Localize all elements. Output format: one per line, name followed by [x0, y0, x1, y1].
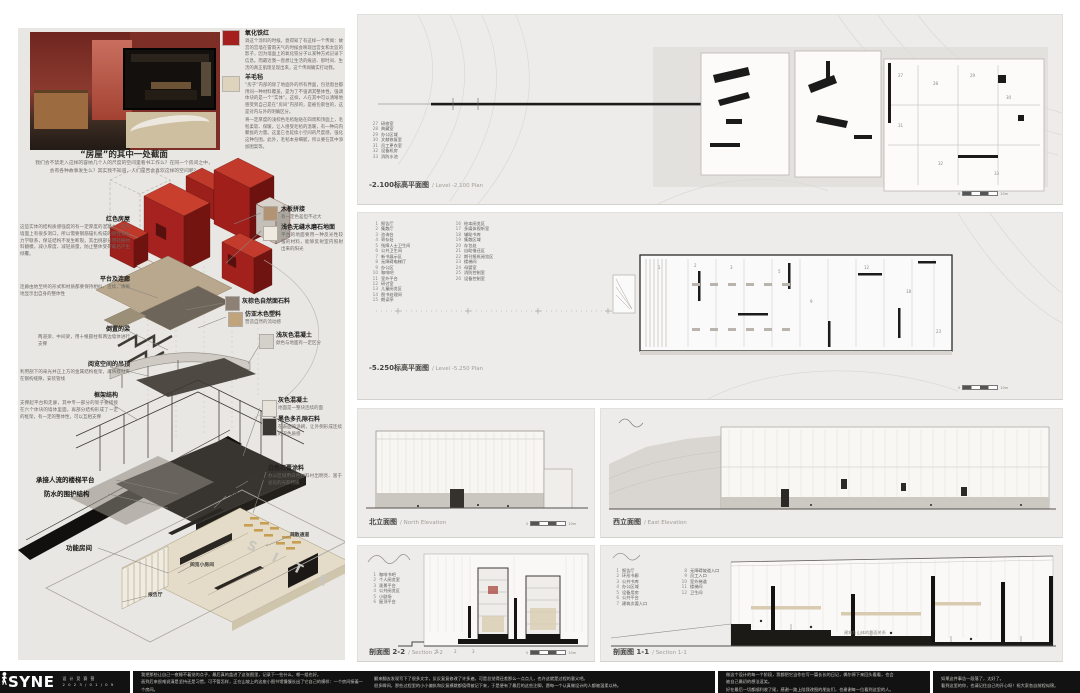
annotation-light-concrete: 浅灰色混凝土 颜色与地面有一定区分 [276, 332, 342, 348]
svg-text:28: 28 [933, 81, 939, 86]
annotation-body: 办公区域用白色材料衬出明亮、富于变化的光影特质 [268, 474, 342, 488]
section22-caption: 剖面图 2-2/ Section 2-2 [369, 647, 443, 657]
annotation-title: 浅灰色混凝土 [276, 332, 342, 339]
axonometric-panel: S I T E [18, 28, 345, 660]
concept-sketch [613, 553, 640, 560]
scale-bar: 010m [526, 521, 576, 526]
annotation-stair-platform: 承接人流的楼梯平台 [36, 474, 95, 484]
annotation-title: 灰棕色自然面石料 [242, 298, 342, 305]
annotation-body: 连廊由始至终的形式和材质都要保持相似、连续，清晰地显示出自身的整体性 [20, 285, 130, 299]
annotation-title: 仿亚木色塑料 [245, 311, 341, 318]
annotation-body: 平台的地面要用一种反光性较强的材料，能够反射室内照射出来的阳光 [281, 233, 343, 253]
swatch-terrazzo [263, 226, 278, 241]
caption-en: / Level -5.250 Plan [432, 366, 483, 372]
plan-level-2100-panel: 272829 303132 33 27研修室28典藏室29办公区域30文献修复室… [357, 14, 1063, 205]
plan2-legend: 1报告厅2集散厅3咨询台4寄存处5残障人士卫生间6公共卫生间7新书展示区8无障碍… [370, 221, 520, 305]
scale-zero: 0 [958, 386, 960, 390]
plan1-legend: 27研修室28典藏室29办公区域30文献修复室31员工更衣室32设备机房33消防… [370, 121, 402, 159]
figure-icon [0, 671, 9, 687]
legend-item: 12卫生间 [679, 590, 731, 595]
annotation-body: 营造自然的流动感 [245, 320, 341, 327]
svg-text:30: 30 [1006, 95, 1012, 100]
note-title: 羊毛毡 [245, 74, 343, 81]
svg-text:27: 27 [898, 73, 904, 78]
plan-level-5250-panel: 123 5912 1823 1报告厅2集散厅3咨询台4寄存处5残障人士卫生间6公… [357, 212, 1063, 400]
plan2-caption: -5.250标高平面图/ Level -5.250 Plan [369, 363, 483, 373]
scale-zero: 0 [526, 522, 528, 526]
annotation-red-houses: 红色房屋 这些实体的结构质感强度的有一定厚度的混凝土，因为墙面上有很多洞口，所以… [20, 216, 130, 259]
section-2-2-panel: 123 1咖啡书吧2个人阅览室3观景平台4公共阅览区5小剧场6屋顶平台 剖面图 … [357, 545, 595, 662]
scale-end: 10m [568, 522, 576, 526]
svg-text:31: 31 [898, 123, 904, 128]
note-title: 氧化铁红 [245, 30, 343, 37]
section-title: “房屋”的其中一处截面 [28, 148, 220, 160]
caption-zh: 西立面图 [613, 518, 641, 526]
legend-item: 15朗读亭 [370, 297, 437, 302]
annotation-gray-concrete: 灰色混凝土 地面是一整块连续的面 [278, 397, 342, 413]
chairs-row [145, 90, 197, 100]
caption-zh: 剖面图 1-1 [613, 648, 649, 656]
interior-render-photo [30, 32, 220, 150]
north-elevation-panel: 北立面图/ North Elevation 010m [357, 408, 595, 538]
legend-item: 7建筑次要入口 [611, 601, 663, 606]
swatch-stone [225, 296, 240, 311]
swatch-wood-plank [263, 206, 278, 221]
swatch-light-concrete [259, 334, 274, 349]
annotation-body: 这些实体的结构质感强度的有一定厚度的混凝土，因为墙面上有很多洞口，所以需要钢筋锚… [20, 225, 130, 259]
material-swatch-red [222, 30, 240, 46]
annotation-body: 地面是一整块连续的面 [278, 406, 342, 413]
caption-en: / Section 2-2 [408, 650, 443, 656]
presentation-board: S I T E [0, 0, 1080, 693]
caption-zh: -5.250标高平面图 [369, 364, 429, 372]
footer-line: 我把那些让自己一夜睡不着觉的点子，最后真的盖进了这张图里，记录下一些什么，哪一组… [141, 671, 366, 678]
caption-en: / Section 1-1 [652, 650, 687, 656]
meeting-table [151, 82, 191, 89]
annotation-ceiling: 阅览空间的吊顶 利用剖下的采光井正上方的金属结构框架，再将膜材夹在钢构缝隙，安装… [20, 361, 130, 384]
label-reading-room: 阅览小房间 [190, 561, 214, 568]
swatch-gray-concrete [262, 400, 277, 417]
window-slot [201, 62, 211, 96]
swatch-plastic [228, 312, 243, 327]
footer-line: 画到后来很难说清是坚持还是习惯，可不管怎样，正在山坡上的这座小图书馆慢慢长出了它… [141, 678, 366, 692]
footer-text-block-1: 我把那些让自己一夜睡不着觉的点子，最后真的盖进了这张图里，记录下一些什么，哪一组… [133, 671, 715, 693]
note-body: 调这个涂料的时候，竟得知了有这样一个传闻：故宫的宫墙在雷雨天气的时候会映现出宫女… [245, 39, 343, 72]
annotation-waterproof-envelope: 防水的围护结构 [44, 488, 90, 498]
annotation-inverted-beam: 倒置的梁 两道梁、中间梁，用十根圆柱和两边墙体进行支撑 [38, 326, 130, 349]
note-body: “房子”内部的除了地面外的所有界面，包括窗台都用同一种材料覆盖，是为了不强调其整… [245, 83, 343, 116]
plan-level-2100-drawing: 272829 303132 33 [358, 15, 1062, 204]
footer-sub-title: 设 计 竞 赛 营 [62, 676, 95, 681]
caption-zh: 剖面图 2-2 [369, 648, 405, 656]
syne-logo: SYNE [8, 673, 54, 691]
footer-note: 如果这件事告一段落了，太好了。 看到这里的你，也请记住自己的开心呀！祝大家各自前… [941, 675, 1072, 689]
svg-text:2: 2 [454, 649, 457, 654]
caption-en: / Level -2.100 Plan [432, 183, 483, 189]
label-evacuation: 疏散通道 [290, 531, 309, 538]
annotation-title: 白色石膏涂料 [268, 465, 342, 472]
annotation-title: 灰色混凝土 [278, 397, 342, 404]
note-body-2: 将一定厚度的浅棕色毛毡粘贴在四周和顶面上，毛毡柔软、保暖，让人感受毛毡的温暖，有… [245, 118, 343, 151]
scale-end: 10m [1000, 386, 1008, 390]
caption-zh: -2.100标高平面图 [369, 181, 429, 189]
legend-item: 33消防水池 [370, 154, 402, 159]
caption-zh: 北立面图 [369, 518, 397, 526]
footer-line: 好在最后一切都顺利收了尾，感谢一路上陪我改图的朋友们，也谢谢每一位看到这里的人。 [726, 686, 896, 693]
svg-text:32: 32 [938, 161, 944, 166]
scale-zero: 0 [526, 651, 528, 655]
east-elevation-panel: 西立面图/ East Elevation [600, 408, 1063, 538]
section11-legend: 1报告厅2环形书廊3公共书库4办公区域5设备用房6公共平台7建筑次要入口8无障碍… [611, 568, 731, 610]
svg-text:23: 23 [936, 329, 942, 334]
note-wool-felt: 羊毛毡 “房子”内部的除了地面外的所有界面，包括窗台都用同一种材料覆盖，是为了不… [245, 74, 343, 151]
scale-zero: 0 [958, 192, 960, 196]
material-swatch-felt [222, 76, 240, 92]
annotation-title: 倒置的梁 [38, 326, 130, 333]
footer-note: 我把那些让自己一夜睡不着觉的点子，最后真的盖进了这张图里，记录下一些什么，哪一组… [141, 671, 366, 692]
footer-text-block-3: 如果这件事告一段落了，太好了。 看到这里的你，也请记住自己的开心呀！祝大家各自前… [933, 671, 1080, 693]
meeting-room-inset [123, 48, 216, 110]
section-body: 我们会不禁走入这样的容纳几个人的尺度的空间里看书工作么？在同一个房间之中， 会有… [20, 160, 228, 175]
footer-sub: 设 计 竞 赛 营 2 0 2 3 / 0 1 / 0 9 [62, 676, 114, 688]
footer-line: 翻来翻去发现写下了很多文字，反反复复修改了许多遍，可是总觉得还差那么一点点儿，也… [374, 675, 674, 682]
footer-line: 很多瞬间，那些过程里的小小偏执和反复横跳都值得被记下来，于是便有了最后的这些注脚… [374, 682, 674, 689]
footer-line: 如果这件事告一段落了，太好了。 [941, 675, 1072, 682]
annotation-title: 阅览空间的吊顶 [20, 361, 130, 368]
annotation-title: 红色房屋 [20, 216, 130, 223]
label-lecture-hall: 报告厅 [148, 591, 162, 598]
footer-logo-block: SYNE 设 计 竞 赛 营 2 0 2 3 / 0 1 / 0 9 [0, 671, 130, 693]
white-spiral-stair [129, 111, 211, 144]
scale-end: 10m [1000, 192, 1008, 196]
annotation-function-rooms: 功能房间 [66, 542, 92, 552]
swatch-black-stone [262, 418, 277, 436]
annotation-title: 平台及连廊 [20, 276, 130, 283]
annotation-title: 木板拼接 [281, 206, 343, 213]
legend-item: 6屋顶平台 [368, 599, 400, 604]
concept-sketch [368, 554, 410, 563]
scale-bar: 010m [526, 650, 576, 655]
annotation-white-plaster: 白色石膏涂料 办公区域用白色材料衬出明亮、富于变化的光影特质 [268, 465, 342, 488]
annotation-stone: 灰棕色自然面石料 [242, 298, 342, 305]
caption-en: / East Elevation [644, 520, 687, 526]
footer-line: 做这个设计的每一个阶段，我都把它当作在写一篇长长的日记，偶尔停下来回头看看，也会… [726, 671, 896, 685]
svg-text:18: 18 [906, 289, 912, 294]
annotation-wood-plank: 木板拼接 有一定色差但不过大 [281, 206, 343, 222]
east-elevation-caption: 西立面图/ East Elevation [613, 517, 687, 527]
annotation-platforms: 平台及连廊 连廊由始至终的形式和材质都要保持相似、连续，清晰地显示出自身的整体性 [20, 276, 130, 299]
annotation-black-stone: 黑色多孔隙石料 在表面的涂刷，让外侧形成连续的深色质感 [278, 416, 342, 439]
annotation-terrazzo: 浅色无缝水磨石地面 平台的地面要用一种反光性较强的材料，能够反射室内照射出来的阳… [281, 224, 343, 253]
plan1-caption: -2.100标高平面图/ Level -2.100 Plan [369, 180, 483, 190]
annotation-plastic: 仿亚木色塑料 营造自然的流动感 [245, 311, 341, 327]
annotation-title: 浅色无缝水磨石地面 [281, 224, 343, 231]
svg-text:29: 29 [970, 73, 976, 78]
svg-text:12: 12 [864, 265, 870, 270]
scale-bar: 010m [958, 385, 1008, 390]
caption-en: / North Elevation [400, 520, 446, 526]
label-office: 办公区 [224, 490, 238, 497]
section22-legend: 1咖啡书吧2个人阅览室3观景平台4公共阅览区5小剧场6屋顶平台 [368, 572, 400, 605]
annotation-body: 利用剖下的采光井正上方的金属结构框架，再将膜材夹在钢构缝隙，安装管线 [20, 370, 130, 384]
stair-floor [126, 112, 216, 148]
footer-line: 看到这里的你，也请记住自己的开心呀！祝大家各自前程似锦。 [941, 682, 1072, 689]
label-corridor-stacks: 环廊+书库 [248, 476, 271, 483]
section11-note: 建筑与山体的剖面关系 [844, 630, 886, 636]
annotation-body: 有一定色差但不过大 [281, 215, 343, 222]
footer-date: 2 0 2 3 / 0 1 / 0 9 [62, 682, 114, 687]
note-iron-oxide-red: 氧化铁红 调这个涂料的时候，竟得知了有这样一个传闻：故宫的宫墙在雷雨天气的时候会… [245, 30, 343, 72]
footer-bar: SYNE 设 计 竞 赛 营 2 0 2 3 / 0 1 / 0 9 我把那些让… [0, 671, 1080, 693]
svg-text:3: 3 [472, 649, 475, 654]
footer-note: 做这个设计的每一个阶段，我都把它当作在写一篇长长的日记，偶尔停下来回头看看，也会… [726, 671, 896, 692]
annotation-body: 颜色与地面有一定区分 [276, 341, 342, 348]
annotation-frame-structure: 框架结构 支撑起平台和走廊，其中专一部分的架子要搭接在六个体块的墙体里面，再部分… [20, 392, 118, 421]
wood-counter [34, 90, 88, 129]
footer-text-block-2: 做这个设计的每一个阶段，我都把它当作在写一篇长长的日记，偶尔停下来回头看看，也会… [718, 671, 930, 693]
scale-bar: 010m [958, 191, 1008, 196]
section-1-1-panel: 1报告厅2环形书廊3公共书库4办公区域5设备用房6公共平台7建筑次要入口8无障碍… [600, 545, 1063, 662]
annotation-title: 框架结构 [20, 392, 118, 399]
legend-item: 26设备控制室 [453, 276, 520, 281]
footer-note: 翻来翻去发现写下了很多文字，反反复复修改了许多遍，可是总觉得还差那么一点点儿，也… [374, 675, 674, 689]
north-elevation-caption: 北立面图/ North Elevation [369, 517, 446, 527]
annotation-body: 支撑起平台和走廊，其中专一部分的架子要搭接在六个体块的墙体里面，再部分结构形成了… [20, 401, 118, 421]
annotation-body: 在表面的涂刷，让外侧形成连续的深色质感 [278, 425, 342, 439]
svg-text:33: 33 [994, 171, 1000, 176]
annotation-body: 两道梁、中间梁，用十根圆柱和两边墙体进行支撑 [38, 335, 130, 349]
scale-end: 10m [568, 651, 576, 655]
ceiling-band [131, 54, 209, 62]
section11-caption: 剖面图 1-1/ Section 1-1 [613, 647, 687, 657]
annotation-title: 黑色多孔隙石料 [278, 416, 342, 423]
